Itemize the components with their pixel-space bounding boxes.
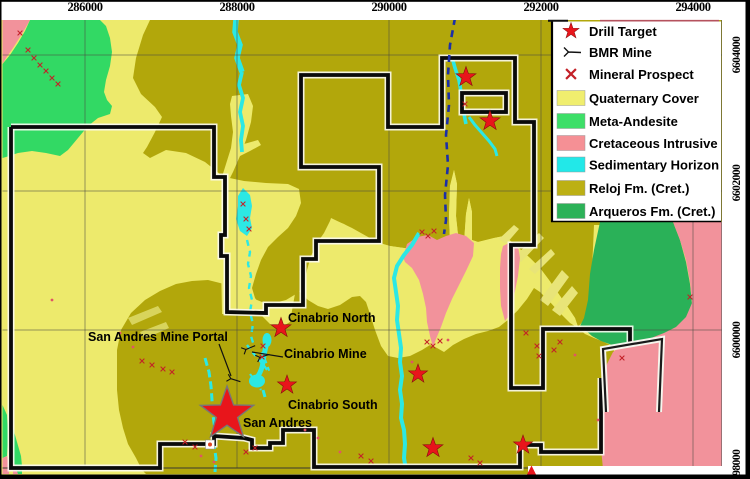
svg-text:Arqueros Fm. (Cret.): Arqueros Fm. (Cret.): [589, 204, 715, 219]
svg-text:Cinabrio North: Cinabrio North: [288, 311, 376, 325]
svg-text:San Andres: San Andres: [243, 416, 312, 430]
svg-text:San Andres Mine Portal: San Andres Mine Portal: [88, 330, 228, 344]
svg-text:Cretaceous Intrusive: Cretaceous Intrusive: [589, 136, 718, 151]
svg-text:294000: 294000: [675, 0, 710, 14]
svg-text:Cinabrio Mine: Cinabrio Mine: [284, 347, 367, 361]
svg-text:6600000: 6600000: [731, 321, 743, 359]
svg-text:288000: 288000: [219, 0, 254, 14]
svg-text:Sedimentary Horizon: Sedimentary Horizon: [589, 157, 719, 172]
svg-text:292000: 292000: [523, 0, 558, 14]
svg-text:286000: 286000: [67, 0, 102, 14]
svg-text:Cinabrio South: Cinabrio South: [288, 398, 378, 412]
svg-text:Mineral Prospect: Mineral Prospect: [589, 67, 694, 82]
svg-text:6602000: 6602000: [731, 164, 743, 202]
svg-text:6604000: 6604000: [731, 36, 743, 74]
svg-text:Meta-Andesite: Meta-Andesite: [589, 114, 678, 129]
svg-text:Quaternary Cover: Quaternary Cover: [589, 91, 699, 106]
svg-text:290000: 290000: [371, 0, 406, 14]
svg-text:6598000: 6598000: [731, 449, 743, 479]
svg-text:Drill Target: Drill Target: [589, 24, 657, 39]
svg-text:BMR Mine: BMR Mine: [589, 45, 652, 60]
svg-text:Reloj Fm. (Cret.): Reloj Fm. (Cret.): [589, 181, 689, 196]
